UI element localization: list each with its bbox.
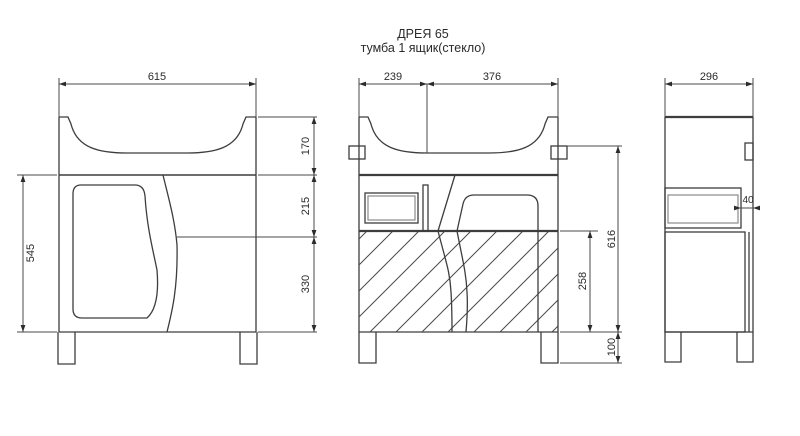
side-view <box>665 117 753 362</box>
seam-upper-line <box>438 175 455 231</box>
dim-label-d376: 376 <box>483 71 501 83</box>
side-front-leg <box>737 332 753 362</box>
dim-label-d239: 239 <box>384 71 402 83</box>
front-right-leg <box>240 332 257 364</box>
drawing-subtitle: тумба 1 ящик(стекло) <box>361 41 486 55</box>
open-right-leg <box>541 332 558 363</box>
inner-panel-outer <box>365 193 418 223</box>
dim-label-d545: 545 <box>25 244 37 262</box>
drawing-title: ДРЕЯ 65 <box>397 27 449 41</box>
side-front-tab <box>745 143 753 160</box>
front-left-leg <box>58 332 75 364</box>
inner-panel-inner <box>368 196 415 220</box>
center-strip <box>423 185 428 231</box>
open-left-leg <box>359 332 376 363</box>
side-outline <box>665 117 753 332</box>
open-basin-outline <box>359 117 558 153</box>
dim-label-d215: 215 <box>300 197 312 215</box>
front-open-view <box>349 117 567 363</box>
front-view <box>58 117 317 364</box>
technical-drawing: ДРЕЯ 65 тумба 1 ящик(стекло) <box>0 0 800 436</box>
front-door-outline <box>73 185 158 318</box>
side-drawer-box <box>665 188 741 228</box>
dim-label-d100: 100 <box>606 338 618 356</box>
side-drawer-inner <box>668 195 738 223</box>
side-back-leg <box>665 332 681 362</box>
drawing-canvas: ДРЕЯ 65 тумба 1 ящик(стекло) <box>0 0 800 436</box>
front-basin-outline <box>59 117 256 153</box>
side-tab-right <box>551 146 567 159</box>
dim-label-d615: 615 <box>148 71 166 83</box>
dim-label-d258: 258 <box>577 272 589 290</box>
side-door-panel <box>665 232 745 332</box>
side-tab-left <box>349 146 365 159</box>
drawer-front-top-outline <box>457 195 538 231</box>
dim-label-d330: 330 <box>300 275 312 293</box>
front-outline <box>59 117 256 332</box>
dim-label-d40: 40 <box>742 195 754 206</box>
front-seam-curve <box>163 175 177 332</box>
dim-label-d616: 616 <box>606 230 618 248</box>
dim-label-d170: 170 <box>300 137 312 155</box>
dim-label-d296: 296 <box>700 71 718 83</box>
glass-hatch-area <box>359 231 558 332</box>
